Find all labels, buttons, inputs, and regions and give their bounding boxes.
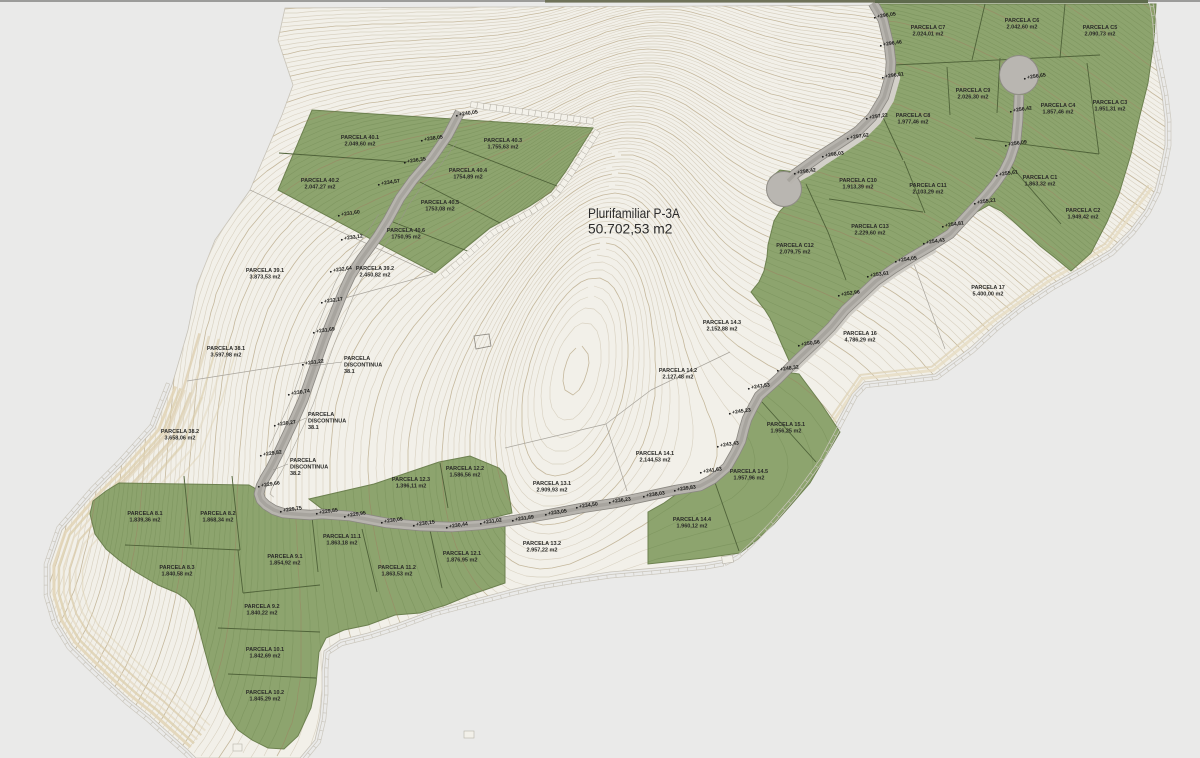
svg-text:PARCELA 10.1: PARCELA 10.1	[246, 647, 284, 653]
svg-text:2.144,53 m2: 2.144,53 m2	[640, 458, 671, 464]
svg-text:38.1: 38.1	[344, 369, 355, 375]
svg-text:1.396,11 m2: 1.396,11 m2	[396, 484, 427, 490]
svg-text:3.873,53 m2: 3.873,53 m2	[250, 275, 281, 281]
svg-text:PARCELA C8: PARCELA C8	[896, 113, 931, 119]
svg-text:PARCELA C6: PARCELA C6	[1005, 18, 1040, 24]
svg-text:2.042,60 m2: 2.042,60 m2	[1007, 25, 1038, 31]
svg-text:PARCELA 39.1: PARCELA 39.1	[246, 268, 284, 274]
svg-text:1.854,92 m2: 1.854,92 m2	[270, 561, 301, 567]
svg-text:PARCELA: PARCELA	[344, 356, 370, 362]
svg-text:PARCELA 13.1: PARCELA 13.1	[533, 481, 571, 487]
svg-text:PARCELA 40.5: PARCELA 40.5	[421, 200, 459, 206]
svg-text:PARCELA 14.3: PARCELA 14.3	[703, 320, 741, 326]
svg-text:PARCELA C3: PARCELA C3	[1093, 100, 1128, 106]
svg-text:1.755,63 m2: 1.755,63 m2	[488, 145, 519, 151]
svg-text:Plurifamiliar P-3A: Plurifamiliar P-3A	[588, 206, 681, 221]
svg-text:2.026,30 m2: 2.026,30 m2	[958, 95, 989, 101]
svg-text:2.127,48 m2: 2.127,48 m2	[663, 375, 694, 381]
svg-text:1.949,42 m2: 1.949,42 m2	[1068, 215, 1099, 221]
svg-text:38.1: 38.1	[308, 425, 319, 431]
svg-text:1.586,56 m2: 1.586,56 m2	[450, 473, 481, 479]
svg-text:PARCELA C1: PARCELA C1	[1023, 175, 1058, 181]
svg-text:PARCELA: PARCELA	[308, 412, 334, 418]
svg-text:PARCELA 38.1: PARCELA 38.1	[207, 346, 245, 352]
svg-text:1750,95 m2: 1750,95 m2	[391, 235, 420, 241]
svg-text:2.103,29 m2: 2.103,29 m2	[913, 190, 944, 196]
svg-text:2.049,60 m2: 2.049,60 m2	[345, 142, 376, 148]
svg-text:PARCELA 38.2: PARCELA 38.2	[161, 429, 199, 435]
svg-text:50.702,53 m2: 50.702,53 m2	[588, 222, 672, 237]
svg-text:PARCELA: PARCELA	[290, 458, 316, 464]
svg-text:PARCELA C7: PARCELA C7	[911, 25, 946, 31]
svg-text:3.597,98 m2: 3.597,98 m2	[211, 353, 242, 359]
svg-text:PARCELA 14.1: PARCELA 14.1	[636, 451, 674, 457]
svg-text:PARCELA C4: PARCELA C4	[1041, 103, 1076, 109]
svg-text:DISCONTINUA: DISCONTINUA	[290, 465, 328, 471]
svg-text:PARCELA 17: PARCELA 17	[971, 285, 1005, 291]
svg-text:1.957,96 m2: 1.957,96 m2	[734, 476, 765, 482]
svg-text:DISCONTINUA: DISCONTINUA	[308, 419, 346, 425]
svg-text:1.840,58 m2: 1.840,58 m2	[162, 572, 193, 578]
svg-text:2.152,88 m2: 2.152,88 m2	[707, 327, 738, 333]
svg-text:PARCELA 10.2: PARCELA 10.2	[246, 690, 284, 696]
svg-text:PARCELA 40.2: PARCELA 40.2	[301, 178, 339, 184]
svg-text:PARCELA 14.2: PARCELA 14.2	[659, 368, 697, 374]
svg-text:PARCELA C2: PARCELA C2	[1066, 208, 1101, 214]
svg-text:PARCELA 8.2: PARCELA 8.2	[200, 511, 235, 517]
svg-text:3.658,06 m2: 3.658,06 m2	[165, 436, 196, 442]
svg-text:2.047,27 m2: 2.047,27 m2	[305, 185, 336, 191]
svg-text:2.090,73 m2: 2.090,73 m2	[1085, 32, 1116, 38]
svg-text:2.957,22 m2: 2.957,22 m2	[527, 548, 558, 554]
svg-text:1.842,69 m2: 1.842,69 m2	[250, 654, 281, 660]
svg-text:PARCELA 15.1: PARCELA 15.1	[767, 422, 805, 428]
svg-text:PARCELA C13: PARCELA C13	[851, 224, 889, 230]
svg-text:PARCELA 8.3: PARCELA 8.3	[159, 565, 194, 571]
svg-text:PARCELA 40.4: PARCELA 40.4	[449, 168, 488, 174]
svg-text:1753,08 m2: 1753,08 m2	[425, 207, 454, 213]
svg-text:1.857,46 m2: 1.857,46 m2	[1043, 110, 1074, 116]
svg-text:PARCELA 14.4: PARCELA 14.4	[673, 517, 712, 523]
svg-text:1.863,53 m2: 1.863,53 m2	[382, 572, 413, 578]
svg-text:1.845,29 m2: 1.845,29 m2	[250, 697, 281, 703]
svg-text:PARCELA C12: PARCELA C12	[776, 243, 814, 249]
svg-text:PARCELA 13.2: PARCELA 13.2	[523, 541, 561, 547]
svg-text:2.909,93 m2: 2.909,93 m2	[537, 488, 568, 494]
svg-text:2.450,82 m2: 2.450,82 m2	[360, 273, 391, 279]
svg-text:PARCELA 9.1: PARCELA 9.1	[267, 554, 302, 560]
svg-text:PARCELA 11.2: PARCELA 11.2	[378, 565, 416, 571]
svg-text:PARCELA 40.3: PARCELA 40.3	[484, 138, 522, 144]
svg-text:PARCELA 8.1: PARCELA 8.1	[127, 511, 162, 517]
svg-text:PARCELA 12.3: PARCELA 12.3	[392, 477, 430, 483]
svg-text:1.956,25 m2: 1.956,25 m2	[771, 429, 802, 435]
svg-text:1.960,12 m2: 1.960,12 m2	[677, 524, 708, 530]
svg-text:2.079,75 m2: 2.079,75 m2	[780, 250, 811, 256]
svg-text:1.863,32 m2: 1.863,32 m2	[1025, 182, 1056, 188]
svg-text:1.913,39 m2: 1.913,39 m2	[843, 185, 874, 191]
svg-text:2.024,01 m2: 2.024,01 m2	[913, 32, 944, 38]
svg-text:PARCELA 12.2: PARCELA 12.2	[446, 466, 484, 472]
svg-text:1.977,46 m2: 1.977,46 m2	[898, 120, 929, 126]
svg-text:PARCELA 40.6: PARCELA 40.6	[387, 228, 425, 234]
svg-text:38.2: 38.2	[290, 471, 301, 477]
svg-text:PARCELA 14.5: PARCELA 14.5	[730, 469, 768, 475]
svg-text:5.400,00 m2: 5.400,00 m2	[973, 292, 1004, 298]
svg-text:4.786,29 m2: 4.786,29 m2	[845, 338, 876, 344]
svg-text:1.868,34 m2: 1.868,34 m2	[203, 518, 234, 524]
svg-text:PARCELA 11.1: PARCELA 11.1	[323, 534, 361, 540]
svg-text:1.863,18 m2: 1.863,18 m2	[327, 541, 358, 547]
svg-text:PARCELA C11: PARCELA C11	[909, 183, 946, 189]
svg-text:1.839,36 m2: 1.839,36 m2	[130, 518, 161, 524]
svg-text:PARCELA C9: PARCELA C9	[956, 88, 991, 94]
svg-text:1.876,95 m2: 1.876,95 m2	[447, 558, 478, 564]
svg-text:1754,89 m2: 1754,89 m2	[453, 175, 482, 181]
svg-text:PARCELA C10: PARCELA C10	[839, 178, 877, 184]
svg-text:2.229,60 m2: 2.229,60 m2	[855, 231, 886, 237]
svg-text:1.951,31 m2: 1.951,31 m2	[1095, 107, 1126, 113]
svg-text:DISCONTINUA: DISCONTINUA	[344, 363, 382, 369]
svg-text:PARCELA 40.1: PARCELA 40.1	[341, 135, 379, 141]
svg-text:PARCELA 9.2: PARCELA 9.2	[244, 604, 279, 610]
svg-text:PARCELA 39.2: PARCELA 39.2	[356, 266, 394, 272]
svg-text:PARCELA C5: PARCELA C5	[1083, 25, 1118, 31]
svg-text:PARCELA 16: PARCELA 16	[843, 331, 877, 337]
svg-text:1.840,22 m2: 1.840,22 m2	[247, 611, 278, 617]
svg-text:PARCELA 12.1: PARCELA 12.1	[443, 551, 481, 557]
